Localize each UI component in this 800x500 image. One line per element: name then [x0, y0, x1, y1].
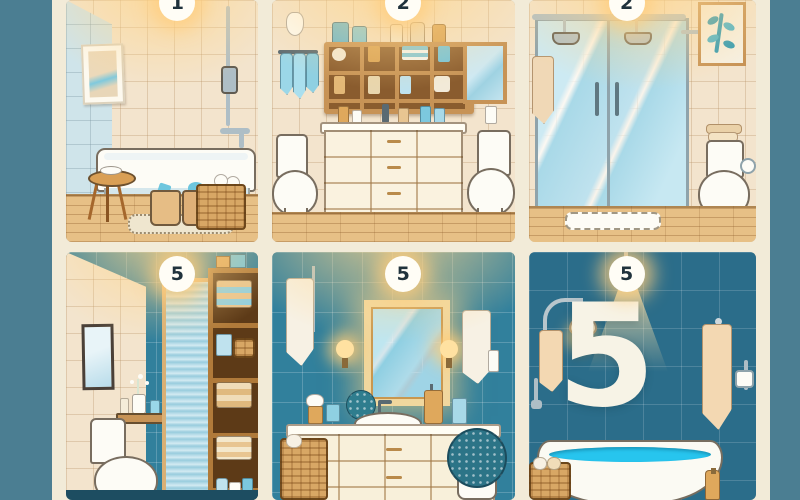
panel-number: 1	[171, 0, 184, 14]
shelf-top-jar	[432, 24, 446, 44]
faucet-spout	[378, 400, 392, 404]
wicker-basket	[196, 184, 246, 230]
cubby-bottle	[438, 46, 450, 62]
panel-number: 5	[620, 263, 633, 285]
panel-2-storage-room: 2	[272, 0, 515, 242]
leaf	[722, 39, 736, 50]
sconce-base	[342, 358, 348, 368]
cubby-jar	[368, 46, 380, 62]
hanging-towel	[462, 310, 491, 384]
panel-number-badge: 5	[609, 256, 645, 292]
cubby-rolled-towel	[332, 48, 346, 61]
flower	[145, 381, 149, 385]
tub-faucet-spout	[239, 132, 244, 148]
folded-towel-stack	[216, 280, 252, 308]
wall-sconce	[336, 340, 354, 358]
frosted-glass-door	[162, 278, 212, 500]
hanging-towel-blue	[280, 53, 293, 95]
panel-number: 5	[171, 263, 184, 285]
counter-jar	[308, 406, 323, 424]
flower-stem	[137, 379, 139, 395]
drawer-handle	[387, 192, 401, 195]
potted-topiary-ball	[447, 428, 507, 488]
basket-towel	[533, 457, 547, 470]
door-handle	[595, 82, 599, 116]
counter-pump	[382, 104, 389, 123]
spray-bottle	[488, 350, 499, 372]
wall-art-print	[88, 51, 118, 98]
panel-1-bathtub-room: 1	[66, 0, 258, 242]
cubby-bottle	[400, 76, 411, 94]
panel-grid: 1	[52, 0, 770, 500]
panel-4-toilet-nook: 5	[66, 252, 258, 500]
hanging-towel-right	[702, 324, 732, 430]
handheld-shower-head	[221, 66, 238, 94]
cubby-box	[434, 76, 450, 92]
small-basket	[233, 338, 255, 358]
folded-towel-stack	[216, 436, 252, 460]
sconce-base	[446, 358, 452, 368]
cubby-jar	[368, 76, 380, 94]
counter-cup	[452, 398, 467, 424]
panel-6-freestanding-tub-room: 5 5	[529, 252, 756, 500]
shelf-top-bottle	[390, 24, 403, 44]
wall-sconce	[440, 340, 458, 358]
shelf-top-jar	[410, 22, 425, 44]
panel-number: 2	[397, 0, 410, 14]
bathtub-rim	[104, 153, 248, 160]
handheld-shower-head	[531, 400, 542, 409]
bottle-cap	[711, 468, 716, 474]
robe-hook	[286, 12, 304, 36]
wood-floor	[272, 212, 515, 242]
hanging-towel	[532, 56, 554, 124]
soap-pump-bottle	[424, 390, 443, 424]
door-handle	[615, 82, 619, 116]
hanging-towel-blue	[293, 53, 306, 99]
leaf	[722, 21, 736, 33]
folded-towel-stack	[216, 382, 252, 408]
cubby-shelf	[324, 42, 474, 114]
flower	[130, 380, 134, 384]
toiletry-bottle	[216, 334, 232, 356]
poster: 1	[0, 0, 800, 500]
bath-water	[549, 447, 711, 462]
panel-number-badge: 5	[385, 256, 421, 292]
drawer-handle	[386, 448, 402, 451]
shower-head	[552, 32, 580, 45]
tub-faucet	[220, 128, 250, 134]
vase	[132, 394, 146, 415]
glass-door-frame	[607, 21, 610, 209]
hanging-towel	[286, 278, 314, 366]
shower-top-rail	[532, 14, 686, 20]
panel-5-vanity-room: 5	[272, 252, 515, 500]
drawer-handle	[387, 166, 401, 169]
hanging-towel-blue	[306, 53, 319, 93]
shelf-top-bag	[332, 22, 349, 44]
counter-jar	[326, 404, 340, 422]
drawer-handle	[387, 140, 401, 143]
wall-mirror	[463, 42, 507, 104]
leaf-wall-art	[698, 2, 746, 66]
shower-head	[624, 32, 652, 45]
wall-art	[81, 43, 125, 104]
panel-3-glass-shower-room: 2	[529, 0, 756, 242]
wall-dispenser	[485, 106, 497, 124]
panel-number: 2	[620, 0, 633, 14]
basket-towel	[547, 457, 561, 470]
glass-enclosure	[535, 18, 689, 218]
toilet-paper-holder	[740, 158, 756, 174]
cubby-towel-stack	[402, 46, 428, 60]
amber-bottle	[705, 470, 720, 500]
top-box	[216, 256, 230, 268]
panel-number: 5	[397, 263, 410, 285]
wicker-hamper	[280, 438, 328, 500]
drawer-handle	[386, 476, 402, 479]
panel-number-badge: 5	[159, 256, 195, 292]
cubby-jar	[334, 76, 345, 94]
wall-number: 5	[557, 286, 656, 428]
bath-mat	[565, 212, 661, 230]
hamper-towel	[286, 434, 302, 448]
towel-hook	[715, 318, 722, 325]
soap-bar	[100, 166, 122, 175]
wall-mirror	[81, 324, 114, 391]
dark-floor	[66, 490, 258, 500]
storage-canister	[150, 190, 181, 226]
toilet-paper-roll	[735, 370, 754, 388]
top-box	[230, 254, 246, 268]
